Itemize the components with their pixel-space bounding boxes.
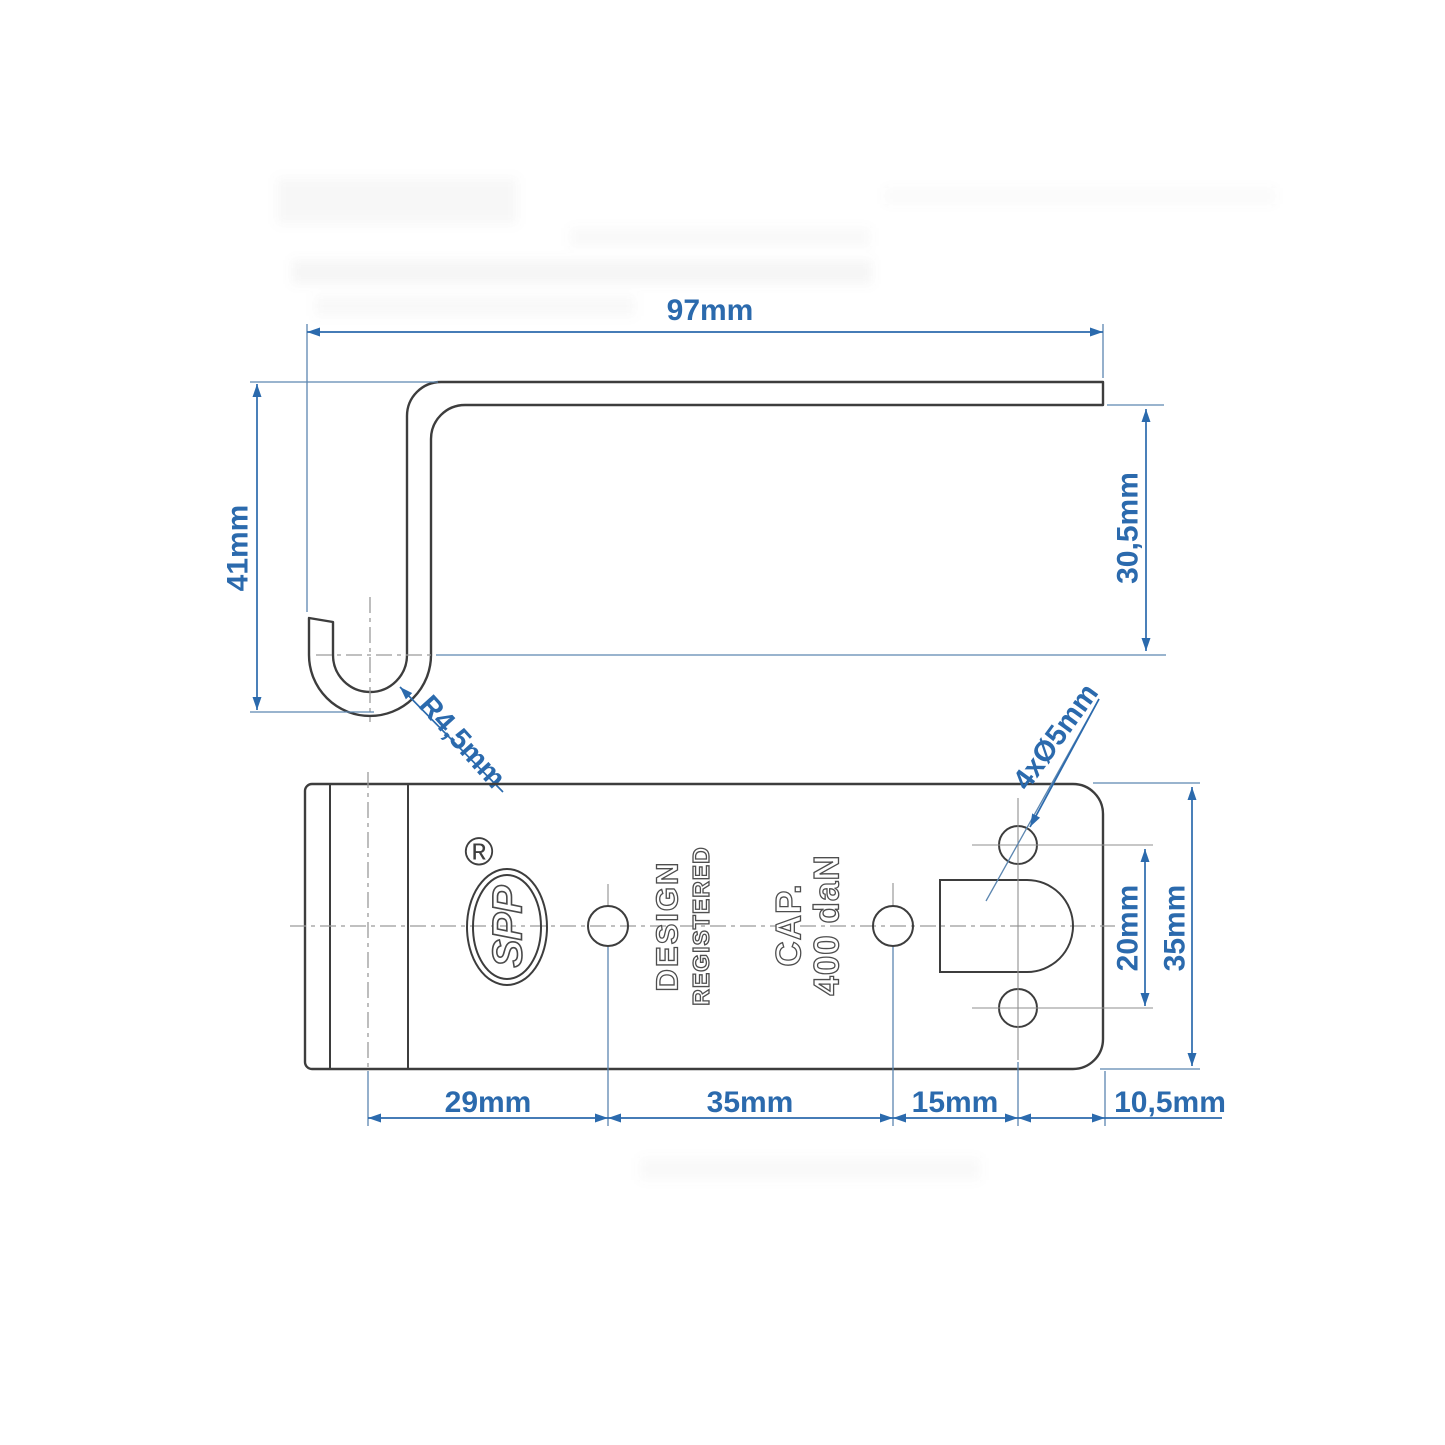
background xyxy=(0,0,1445,1445)
dim-35-label: 35mm xyxy=(707,1086,794,1119)
dim-305-label: 30,5mm xyxy=(1112,472,1145,584)
stamp-load: 400 daN xyxy=(808,854,847,995)
dim-20-label: 20mm xyxy=(1112,885,1145,972)
registered-mark-icon: ® xyxy=(464,830,493,874)
stamp-design: DESIGN xyxy=(650,861,685,992)
technical-drawing-page: 97mm 41mm 30,5mm R4,5mm xyxy=(0,0,1445,1445)
dim-29-label: 29mm xyxy=(445,1086,532,1119)
dim-105-label: 10,5mm xyxy=(1114,1086,1226,1119)
dim-41-label: 41mm xyxy=(222,505,255,592)
dim-97-label: 97mm xyxy=(667,294,754,327)
bracket-drawing-svg: 97mm 41mm 30,5mm R4,5mm xyxy=(0,0,1445,1445)
dim-15-label: 15mm xyxy=(912,1086,999,1119)
dim-35r-label: 35mm xyxy=(1159,885,1192,972)
logo-spp-text: SPP xyxy=(484,884,531,967)
stamp-registered: REGISTERED xyxy=(688,846,714,1006)
stamp-cap: CAP. xyxy=(770,883,809,966)
